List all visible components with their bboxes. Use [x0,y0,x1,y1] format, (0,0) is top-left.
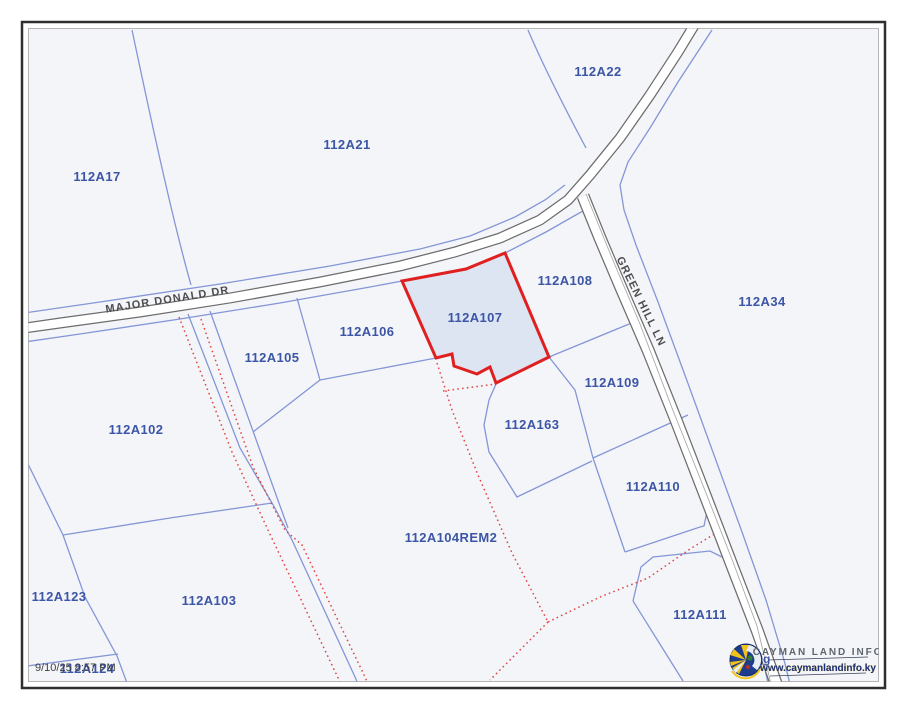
parcel-label-112a109: 112A109 [585,375,640,390]
parcel-label-112a102: 112A102 [109,422,164,437]
parcel-label-112a163: 112A163 [505,417,560,432]
parcel-label-112a108: 112A108 [538,273,593,288]
parcel-label-112a123: 112A123 [32,589,87,604]
parcel-label-112a107[interactable]: 112A107 [448,310,503,325]
parcel-label-112a105: 112A105 [245,350,300,365]
parcel-label-112a110: 112A110 [626,479,680,494]
parcel-label-112a34: 112A34 [738,294,786,309]
parcel-label-112a21: 112A21 [323,137,370,152]
timestamp: 9/10/25 8:57 PM [35,662,116,674]
map-viewer: 112A17 112A21 112A22 112A34 112A106 112A… [0,0,905,710]
parcel-label-112a104rem2: 112A104REM2 [405,530,498,545]
parcel-label-112a22: 112A22 [574,64,621,79]
logo-title: CAYMAN LAND INFO [753,647,884,658]
map-canvas[interactable]: 112A17 112A21 112A22 112A34 112A106 112A… [0,0,905,710]
parcel-label-112a103: 112A103 [182,593,237,608]
parcel-label-112a17: 112A17 [73,169,120,184]
parcel-label-112a111: 112A111 [673,607,726,622]
logo-url: www.caymanlandinfo.ky [759,663,876,674]
parcel-label-112a106: 112A106 [340,324,395,339]
